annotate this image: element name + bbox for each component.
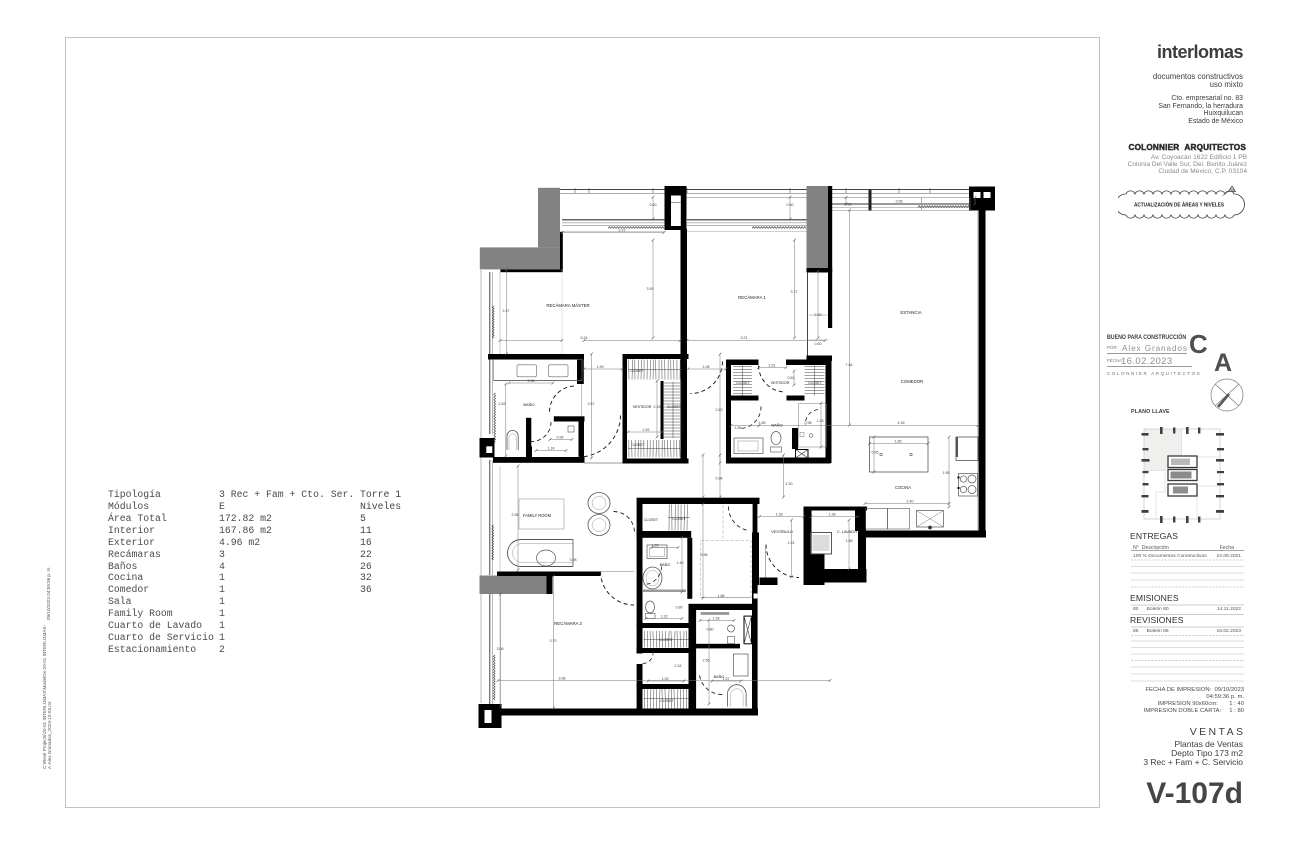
svg-text:3.21: 3.21 <box>741 336 748 340</box>
svg-text:3.98: 3.98 <box>570 558 577 562</box>
svg-text:COMEDOR: COMEDOR <box>901 379 923 384</box>
svg-text:VESTIDOR: VESTIDOR <box>633 405 652 409</box>
svg-text:RECÁMARA MÁSTER: RECÁMARA MÁSTER <box>546 303 589 308</box>
svg-text:2.27: 2.27 <box>503 309 510 313</box>
svg-text:BAÑO: BAÑO <box>714 674 725 679</box>
svg-text:2.83: 2.83 <box>716 408 723 412</box>
svg-text:0.60: 0.60 <box>650 203 657 207</box>
svg-text:2.55: 2.55 <box>703 659 710 663</box>
svg-text:FAMILY ROOM: FAMILY ROOM <box>523 513 552 518</box>
svg-text:1.28: 1.28 <box>776 513 783 517</box>
svg-text:3.98: 3.98 <box>559 677 566 681</box>
svg-text:CLOSET: CLOSET <box>630 369 644 373</box>
svg-text:CLOSET: CLOSET <box>736 381 750 385</box>
svg-text:2.98: 2.98 <box>512 513 519 517</box>
svg-text:1.25: 1.25 <box>652 544 659 548</box>
svg-text:3.77: 3.77 <box>791 290 798 294</box>
svg-text:BAÑO: BAÑO <box>771 423 782 428</box>
svg-text:VESTÍBULO: VESTÍBULO <box>771 529 793 534</box>
svg-text:RECÁMARA 1: RECÁMARA 1 <box>738 295 766 300</box>
svg-text:ESTANCIA: ESTANCIA <box>900 310 921 315</box>
svg-text:0.98: 0.98 <box>716 477 723 481</box>
svg-text:CLOSET: CLOSET <box>672 517 686 521</box>
svg-text:0.95: 0.95 <box>557 436 564 440</box>
svg-text:1.91: 1.91 <box>788 541 795 545</box>
svg-text:BAÑO: BAÑO <box>660 562 671 567</box>
svg-text:2.51: 2.51 <box>769 364 776 368</box>
svg-text:1.56: 1.56 <box>735 426 742 430</box>
svg-text:2.34: 2.34 <box>675 664 682 668</box>
svg-text:2.62: 2.62 <box>499 402 506 406</box>
svg-text:CLOSET: CLOSET <box>667 405 682 409</box>
svg-text:0.98: 0.98 <box>805 421 812 425</box>
svg-text:7.84: 7.84 <box>846 363 853 367</box>
svg-text:1.85: 1.85 <box>759 421 766 425</box>
svg-text:1.95: 1.95 <box>943 471 950 475</box>
svg-text:2.67: 2.67 <box>588 402 595 406</box>
svg-text:CLOSET: CLOSET <box>644 518 659 522</box>
svg-text:2.36: 2.36 <box>528 379 535 383</box>
svg-text:1.33: 1.33 <box>662 677 669 681</box>
svg-text:CLOSET: CLOSET <box>660 699 674 703</box>
svg-text:1.28: 1.28 <box>713 617 720 621</box>
svg-text:CLOSET: CLOSET <box>808 381 822 385</box>
svg-text:CLOSET: CLOSET <box>659 638 673 642</box>
svg-text:3.06: 3.06 <box>497 647 504 651</box>
svg-text:0.60: 0.60 <box>815 342 822 346</box>
svg-text:1.58: 1.58 <box>846 539 853 543</box>
svg-text:0.58: 0.58 <box>845 203 852 207</box>
svg-text:CLOSET: CLOSET <box>631 443 645 447</box>
svg-text:3.95: 3.95 <box>896 200 903 204</box>
svg-text:3.96: 3.96 <box>701 553 708 557</box>
svg-text:0.80: 0.80 <box>707 628 714 632</box>
svg-text:0.60: 0.60 <box>787 203 794 207</box>
svg-text:C. LAVADO: C. LAVADO <box>837 529 857 534</box>
svg-text:COCINA: COCINA <box>895 485 911 490</box>
svg-text:0.83: 0.83 <box>788 376 795 380</box>
svg-text:1.40: 1.40 <box>677 561 684 565</box>
svg-text:1.28: 1.28 <box>817 419 824 423</box>
svg-text:2.15: 2.15 <box>654 405 661 409</box>
svg-text:1.24: 1.24 <box>548 447 555 451</box>
svg-text:0.80: 0.80 <box>676 606 683 610</box>
svg-text:1.32: 1.32 <box>661 615 668 619</box>
svg-text:1.08: 1.08 <box>703 365 710 369</box>
svg-text:3.59: 3.59 <box>647 287 654 291</box>
svg-text:1.68: 1.68 <box>718 594 725 598</box>
svg-text:3.70: 3.70 <box>550 639 557 643</box>
svg-text:1.99: 1.99 <box>597 365 604 369</box>
svg-text:BAÑO: BAÑO <box>523 402 534 407</box>
svg-text:5.24: 5.24 <box>581 336 588 340</box>
svg-text:RECÁMARA 2: RECÁMARA 2 <box>554 621 582 626</box>
svg-text:3.21: 3.21 <box>619 229 626 233</box>
svg-text:2.39: 2.39 <box>815 313 822 317</box>
svg-text:1.85: 1.85 <box>895 440 902 444</box>
svg-text:2.40: 2.40 <box>907 500 914 504</box>
svg-text:1.30: 1.30 <box>786 482 793 486</box>
svg-text:0.95: 0.95 <box>872 451 879 455</box>
svg-text:1.53: 1.53 <box>643 428 650 432</box>
svg-text:VESTIDOR: VESTIDOR <box>771 381 790 385</box>
svg-text:4.18: 4.18 <box>898 421 905 425</box>
svg-text:1.38: 1.38 <box>829 513 836 517</box>
